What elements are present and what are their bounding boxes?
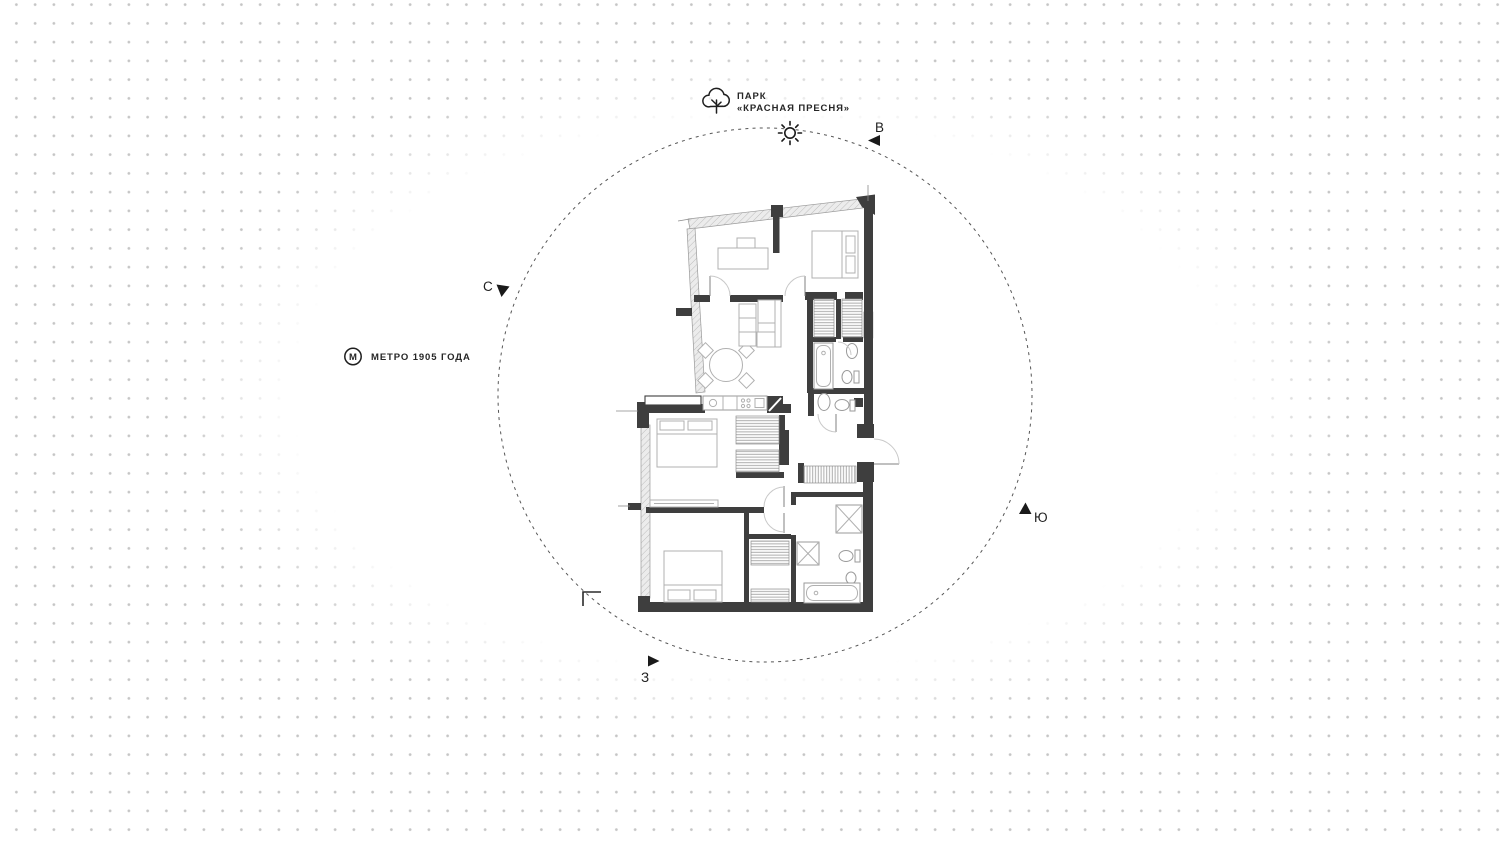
compass-east-arrow — [868, 135, 880, 146]
sink-3 — [846, 572, 856, 584]
compass-north-arrow — [497, 285, 510, 298]
tv-stand — [739, 304, 756, 346]
floor-plan — [616, 185, 899, 612]
wall-step — [645, 396, 701, 405]
wardrobe-1 — [814, 299, 834, 337]
tree-icon — [703, 88, 729, 113]
kitchen-unit — [703, 396, 767, 410]
park-landmark: ПАРК «КРАСНАЯ ПРЕСНЯ» — [703, 88, 850, 114]
bed-1 — [812, 231, 858, 278]
metro-icon-letter: М — [349, 352, 357, 363]
toilet-3 — [839, 550, 860, 562]
armchair — [757, 332, 775, 347]
compass-south-arrow — [1019, 503, 1032, 515]
wardrobe-6 — [751, 541, 789, 565]
sink-2 — [818, 394, 830, 411]
compass-west-arrow — [648, 656, 660, 667]
page: { "canvas": {"width_px": 1500, "height_p… — [0, 0, 1500, 842]
park-label-line2: «КРАСНАЯ ПРЕСНЯ» — [737, 103, 850, 114]
bathtub-1 — [814, 343, 833, 389]
compass-south-label: Ю — [1034, 510, 1048, 525]
metro-landmark: М МЕТРО 1905 ГОДА — [345, 348, 471, 364]
bed-2 — [657, 419, 717, 467]
wardrobe-2 — [842, 299, 862, 337]
metro-label: МЕТРО 1905 ГОДА — [371, 352, 471, 363]
compass-north-label: С — [483, 279, 493, 294]
toilet-2 — [835, 400, 855, 412]
shower-1 — [836, 505, 862, 533]
bathtub-2 — [804, 583, 860, 603]
site-plan: ПАРК «КРАСНАЯ ПРЕСНЯ» М МЕТРО 1905 ГОДА … — [0, 0, 1500, 842]
wardrobe-5 — [804, 466, 856, 483]
sink-1 — [847, 344, 858, 359]
wardrobe-3 — [736, 416, 779, 444]
compass-east-label: В — [875, 120, 884, 135]
desk-middle — [650, 500, 718, 507]
wardrobe-7 — [751, 589, 789, 602]
bed-3 — [664, 551, 722, 602]
shower-2 — [797, 542, 819, 565]
toilet-1 — [842, 371, 859, 384]
park-label-line1: ПАРК — [737, 91, 766, 102]
wardrobe-4 — [736, 450, 779, 472]
entrance-door — [874, 439, 899, 464]
sun-icon — [779, 122, 802, 145]
compass-west-label: З — [641, 670, 649, 685]
